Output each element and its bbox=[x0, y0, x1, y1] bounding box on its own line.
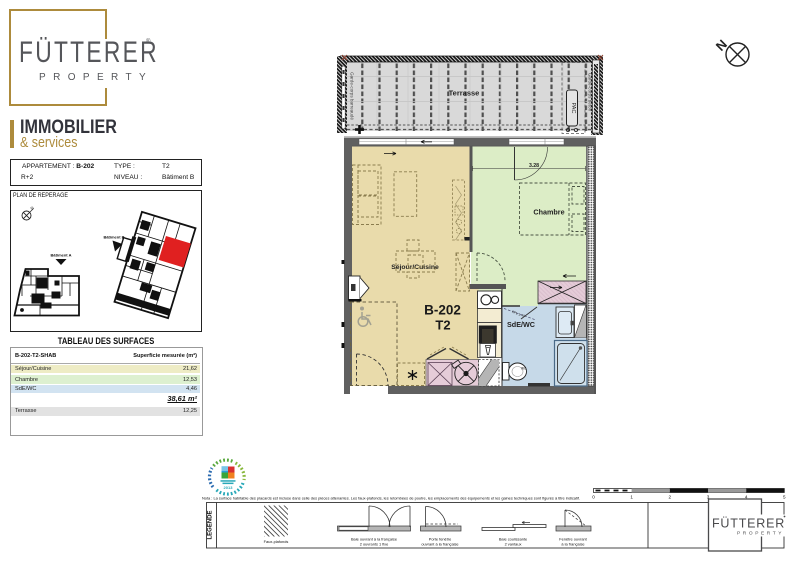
svg-text:2 ouvrants 1 fixe: 2 ouvrants 1 fixe bbox=[360, 542, 389, 547]
svg-text:3.28: 3.28 bbox=[529, 163, 539, 169]
svg-text:Terrasse: Terrasse bbox=[449, 89, 480, 98]
svg-text:ouvrant à la française: ouvrant à la française bbox=[421, 542, 458, 547]
svg-text:Chambre: Chambre bbox=[533, 208, 564, 217]
svg-text:T2: T2 bbox=[435, 318, 450, 333]
svg-text:2013: 2013 bbox=[224, 485, 234, 490]
svg-text:LEGENDE: LEGENDE bbox=[208, 510, 214, 539]
svg-text:0: 0 bbox=[592, 495, 595, 500]
svg-text:Séjour/Cuisine: Séjour/Cuisine bbox=[391, 264, 439, 271]
svg-text:5: 5 bbox=[783, 495, 786, 500]
svg-text:N: N bbox=[29, 205, 35, 211]
svg-text:WC: WC bbox=[521, 367, 527, 371]
svg-text:B-202: B-202 bbox=[424, 303, 461, 318]
svg-text:PROPERTY: PROPERTY bbox=[737, 531, 784, 537]
svg-text:2: 2 bbox=[669, 495, 672, 500]
svg-text:2 vantaux: 2 vantaux bbox=[505, 542, 522, 547]
svg-text:Garde-corps béton: Garde-corps béton bbox=[588, 73, 593, 112]
svg-text:Garde-corps barreaudé: Garde-corps barreaudé bbox=[350, 72, 355, 120]
svg-text:1: 1 bbox=[630, 495, 633, 500]
svg-text:à la française: à la française bbox=[561, 542, 584, 547]
svg-text:FÜTTERER: FÜTTERER bbox=[712, 517, 785, 531]
svg-text:Bâtiment A: Bâtiment A bbox=[51, 253, 72, 258]
svg-text:Faux-plafonds: Faux-plafonds bbox=[264, 539, 289, 544]
svg-text:Nota : La surface habitable de: Nota : La surface habitable des placards… bbox=[202, 496, 580, 501]
svg-text:PAC: PAC bbox=[570, 103, 576, 114]
svg-text:Bâtiment B: Bâtiment B bbox=[103, 235, 124, 240]
svg-text:SdE/WC: SdE/WC bbox=[507, 320, 535, 329]
svg-text:N: N bbox=[713, 37, 730, 54]
